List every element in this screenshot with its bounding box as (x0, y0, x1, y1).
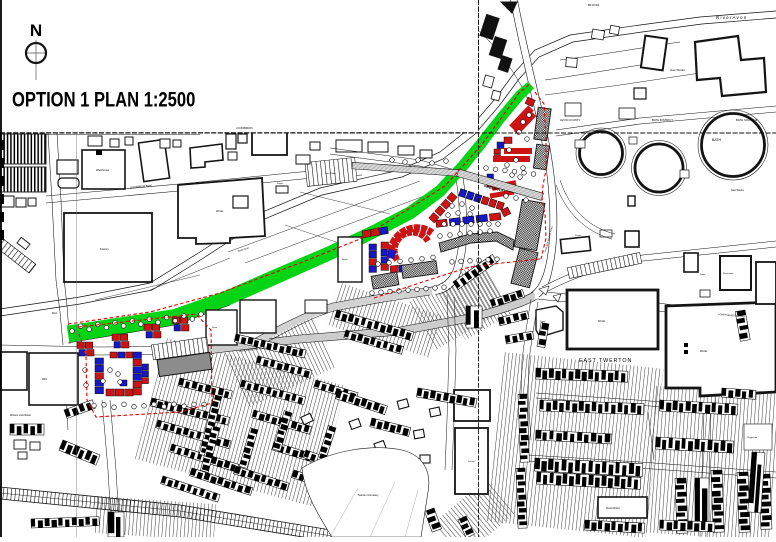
svg-text:Factory: Factory (100, 247, 109, 251)
svg-text:Depot: Depot (700, 273, 706, 276)
svg-text:Mills: Mills (42, 378, 48, 381)
svg-text:Warehouse: Warehouse (723, 273, 734, 275)
svg-text:BATH: BATH (712, 138, 722, 142)
svg-text:EAST TWERTON: EAST TWERTON (579, 358, 632, 364)
svg-text:Works: Works (216, 209, 224, 213)
svg-text:BR 18 004: BR 18 004 (588, 4, 600, 7)
svg-text:Works: Works (598, 319, 606, 323)
svg-text:School: School (468, 461, 475, 463)
svg-text:BATH DISTRICT: BATH DISTRICT (652, 118, 673, 122)
svg-text:Works: Works (700, 349, 708, 353)
svg-text:R i v e r A v o n: R i v e r A v o n (716, 15, 747, 20)
svg-text:Weston Lock Retail: Weston Lock Retail (10, 414, 31, 417)
svg-text:Retail: Retail (342, 258, 348, 261)
svg-text:Store: Store (212, 326, 218, 329)
svg-text:Depot: Depot (277, 182, 283, 185)
svg-text:N: N (30, 21, 42, 40)
svg-text:Twerton Cemetery: Twerton Cemetery (357, 493, 379, 497)
svg-text:Weir: Weir (52, 312, 57, 315)
svg-text:Stuart Works: Stuart Works (606, 507, 621, 510)
svg-text:Gas Works: Gas Works (731, 188, 744, 192)
svg-text:Warehouse: Warehouse (96, 168, 110, 172)
svg-text:Gas Holder: Gas Holder (325, 172, 336, 175)
svg-text:BATH SOUTH W: BATH SOUTH W (736, 118, 758, 122)
svg-text:Depot: Depot (575, 234, 581, 237)
svg-text:Playground: Playground (747, 437, 757, 439)
svg-text:OPTION 1 PLAN 1:2500: OPTION 1 PLAN 1:2500 (12, 89, 195, 112)
svg-text:Gas Works: Gas Works (670, 68, 685, 72)
svg-text:AVON COUNTY: AVON COUNTY (560, 118, 580, 122)
svg-text:LOCKSBROOK: LOCKSBROOK (236, 127, 253, 130)
